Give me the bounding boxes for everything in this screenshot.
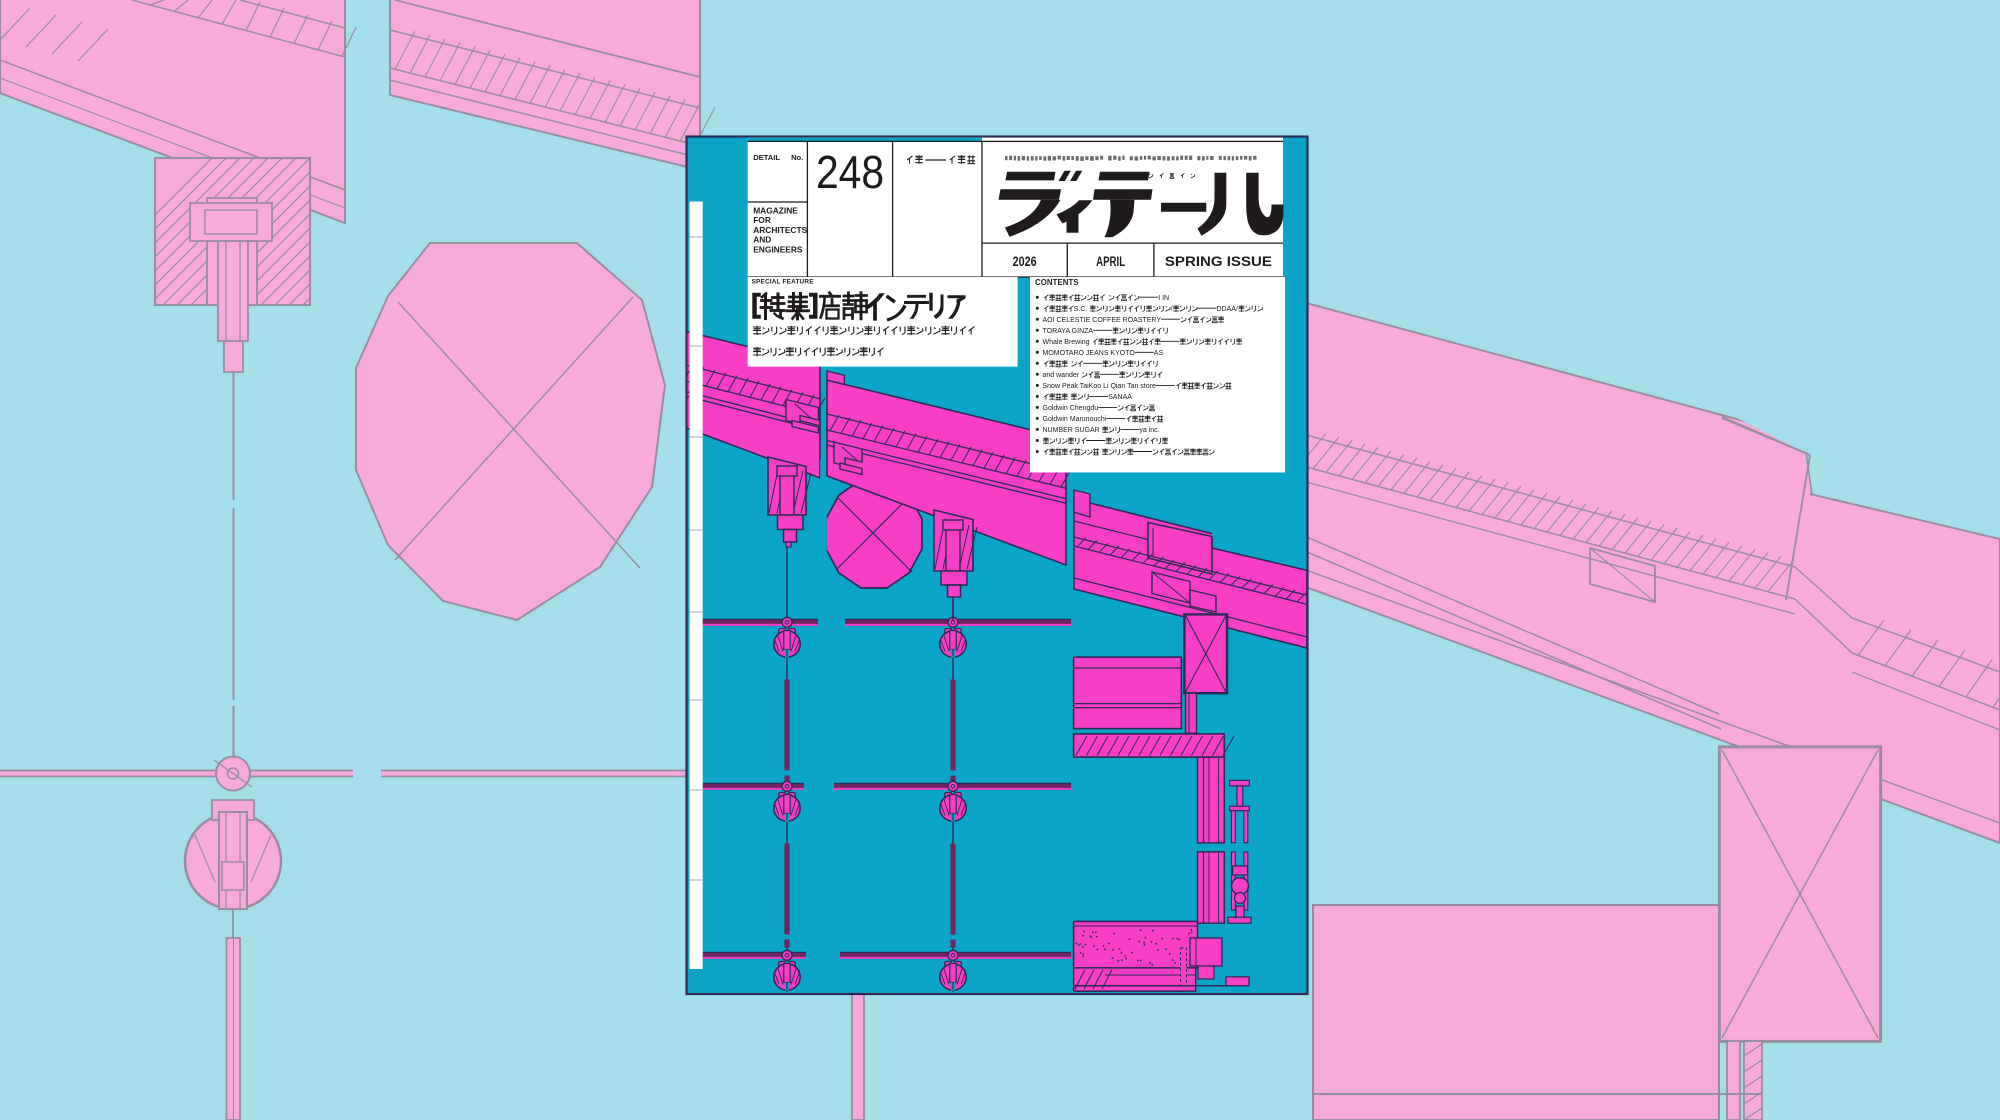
svg-text:/: / [1171, 306, 1173, 313]
svg-text:FOR: FOR [753, 215, 771, 225]
svg-text:AS: AS [1154, 350, 1164, 357]
svg-text:SANAA: SANAA [1108, 394, 1132, 401]
svg-text:Goldwin Marunouchi: Goldwin Marunouchi [1043, 416, 1107, 423]
svg-text:NUMBER SUGAR: NUMBER SUGAR [1043, 427, 1100, 434]
svg-text:ya inc.: ya inc. [1139, 427, 1159, 434]
svg-text:Whale Brewing: Whale Brewing [1043, 339, 1090, 346]
svg-text:DETAIL: DETAIL [753, 153, 780, 162]
svg-text:AND: AND [753, 235, 771, 245]
svg-text:MAGAZINE: MAGAZINE [753, 206, 798, 216]
svg-text:TORAYA GINZA: TORAYA GINZA [1043, 328, 1094, 335]
svg-text:I IN: I IN [1158, 295, 1169, 302]
svg-text:and wander: and wander [1043, 372, 1080, 379]
svg-text:S.C.: S.C. [1074, 306, 1088, 313]
svg-text:DDAA/: DDAA/ [1217, 306, 1238, 313]
svg-text:MOMOTARO JEANS KYOTO: MOMOTARO JEANS KYOTO [1043, 350, 1136, 357]
svg-text:ARCHITECTS: ARCHITECTS [753, 225, 807, 235]
svg-text:CONTENTS: CONTENTS [1035, 278, 1079, 287]
svg-text:APRIL: APRIL [1096, 254, 1125, 269]
svg-text:Goldwin Chengdu: Goldwin Chengdu [1043, 405, 1099, 412]
svg-text:No.: No. [791, 153, 803, 162]
svg-text:SPECIAL FEATURE: SPECIAL FEATURE [752, 279, 815, 286]
svg-text:Snow Peak TaiKoo Li Qian Tan s: Snow Peak TaiKoo Li Qian Tan store [1043, 383, 1156, 390]
svg-text:ENGINEERS: ENGINEERS [753, 244, 803, 254]
svg-text:2026: 2026 [1013, 254, 1037, 269]
svg-text:SPRING ISSUE: SPRING ISSUE [1165, 254, 1272, 269]
svg-text:AOI CELESTIE COFFEE ROASTERY: AOI CELESTIE COFFEE ROASTERY [1043, 317, 1162, 324]
svg-text:248: 248 [816, 146, 884, 198]
